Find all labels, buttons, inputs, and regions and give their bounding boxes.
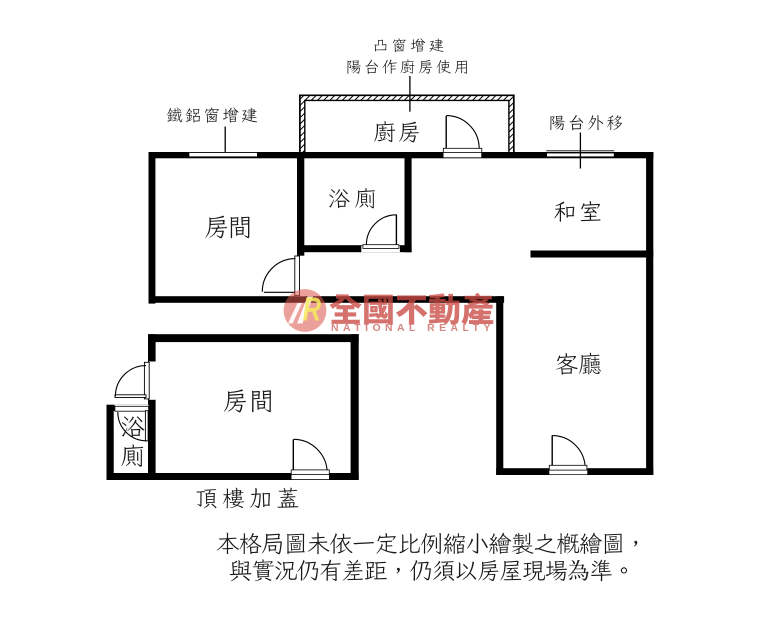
svg-text:NATIONAL REALTY: NATIONAL REALTY xyxy=(331,323,495,334)
svg-text:R: R xyxy=(303,291,322,328)
